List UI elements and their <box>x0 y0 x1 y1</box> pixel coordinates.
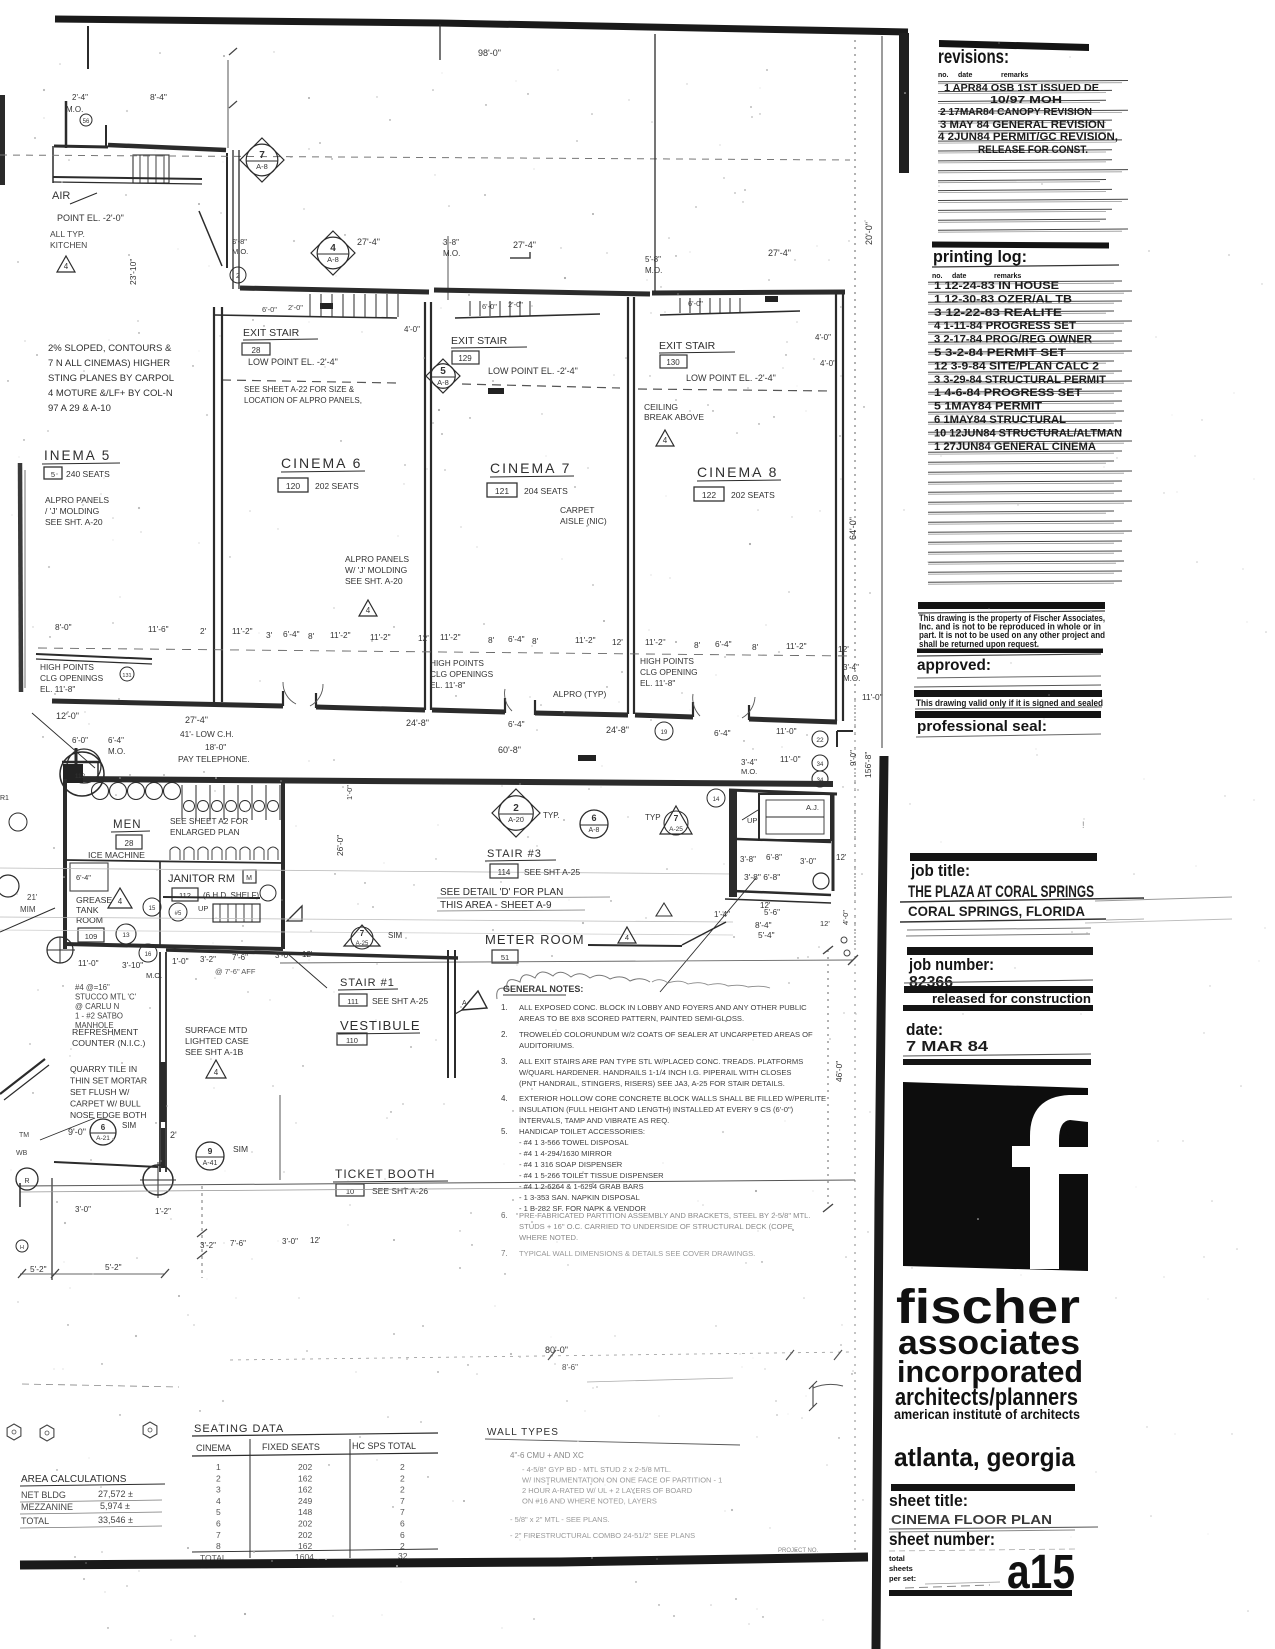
svg-text:SEE DETAIL 'D' FOR PLAN: SEE DETAIL 'D' FOR PLAN <box>440 887 563 898</box>
svg-text:JANITOR RM: JANITOR RM <box>168 873 235 885</box>
svg-text:4: 4 <box>663 436 668 445</box>
svg-text:- 2" FIRESTRUCTURAL COMBO 24-5: - 2" FIRESTRUCTURAL COMBO 24-51/2" SEE P… <box>510 1531 695 1540</box>
svg-text:@ CARLU N: @ CARLU N <box>75 1002 119 1011</box>
svg-text:A-20: A-20 <box>508 815 524 824</box>
svg-text:!: ! <box>1082 820 1085 830</box>
svg-text:printing log:: printing log: <box>933 247 1027 266</box>
svg-text:112: 112 <box>75 773 86 780</box>
svg-text:8': 8' <box>532 636 539 646</box>
svg-text:240 SEATS: 240 SEATS <box>66 469 110 479</box>
svg-text:3.: 3. <box>501 1057 508 1066</box>
svg-text:98'-0": 98'-0" <box>478 48 501 58</box>
svg-text:1 - #2 SATBO: 1 - #2 SATBO <box>75 1012 123 1021</box>
svg-text:AUDITORIUMS.: AUDITORIUMS. <box>519 1041 574 1050</box>
svg-text:MIM: MIM <box>20 905 36 914</box>
svg-text:METER ROOM: METER ROOM <box>485 932 585 947</box>
svg-text:7: 7 <box>360 929 365 938</box>
svg-text:162: 162 <box>298 1485 312 1495</box>
svg-text:114: 114 <box>498 868 511 877</box>
svg-text:202: 202 <box>298 1530 312 1540</box>
svg-text:12': 12' <box>310 1236 321 1245</box>
svg-text:M: M <box>246 875 252 882</box>
svg-text:7'-6": 7'-6" <box>230 1239 246 1248</box>
svg-text:1'-2": 1'-2" <box>155 1207 171 1216</box>
svg-text:3 2-17-84 PROG/REG OWNER: 3 2-17-84 PROG/REG OWNER <box>934 334 1092 346</box>
svg-text:6: 6 <box>591 813 596 823</box>
svg-text:date:: date: <box>906 1020 943 1039</box>
svg-text:3'-2": 3'-2" <box>200 1241 216 1250</box>
svg-text:24'-8": 24'-8" <box>606 725 629 735</box>
svg-text:SURFACE MTD: SURFACE MTD <box>185 1025 247 1035</box>
svg-text:120: 120 <box>286 481 300 491</box>
svg-text:4: 4 <box>625 933 629 942</box>
svg-text:6'-0": 6'-0" <box>262 305 277 314</box>
svg-text:2: 2 <box>400 1485 405 1495</box>
svg-text:21': 21' <box>27 893 38 902</box>
svg-text:6'-4": 6'-4" <box>714 728 731 738</box>
svg-text:M.O.: M.O. <box>232 247 248 256</box>
svg-text:11'-6": 11'-6" <box>148 624 169 634</box>
svg-text:4: 4 <box>330 243 336 254</box>
svg-text:122: 122 <box>702 490 716 500</box>
svg-text:4: 4 <box>118 897 123 906</box>
svg-text:11'-0": 11'-0" <box>862 692 883 702</box>
svg-text:AREAS TO BE 8X8 SCORED PATTERN: AREAS TO BE 8X8 SCORED PATTERN, PAINTED … <box>519 1014 744 1023</box>
svg-text:atlanta, georgia: atlanta, georgia <box>894 1442 1076 1472</box>
svg-text:60'-8": 60'-8" <box>498 745 521 755</box>
svg-text:6'-0": 6'-0" <box>688 299 703 308</box>
svg-text:MEN: MEN <box>113 819 142 831</box>
svg-text:8'-6": 8'-6" <box>562 1363 578 1372</box>
svg-text:7: 7 <box>400 1496 405 1506</box>
svg-text:UP: UP <box>198 904 208 913</box>
svg-text:TYP.: TYP. <box>543 811 560 820</box>
svg-text:H: H <box>20 1245 24 1251</box>
svg-text:INSULATION (FULL HEIGHT AND LE: INSULATION (FULL HEIGHT AND LENGTH) INST… <box>519 1105 794 1114</box>
svg-text:131: 131 <box>122 673 131 679</box>
svg-text:date: date <box>952 273 967 280</box>
svg-text:2': 2' <box>170 1130 177 1140</box>
svg-text:202: 202 <box>298 1519 312 1529</box>
svg-text:8: 8 <box>216 1541 221 1551</box>
svg-text:STUCCO MTL 'C': STUCCO MTL 'C' <box>75 993 137 1002</box>
svg-text:11'-0": 11'-0" <box>78 958 99 968</box>
svg-text:NET BLDG: NET BLDG <box>21 1490 66 1500</box>
svg-text:4'-0": 4'-0" <box>841 910 850 925</box>
svg-text:A.J.: A.J. <box>806 803 819 812</box>
svg-text:M.O.: M.O. <box>108 747 125 756</box>
svg-text:28: 28 <box>125 839 134 848</box>
svg-text:TYP: TYP <box>645 813 661 822</box>
svg-text:GREASE: GREASE <box>76 895 112 905</box>
svg-text:EXIT STAIR: EXIT STAIR <box>243 327 300 339</box>
svg-text:remarks: remarks <box>994 273 1021 280</box>
svg-text:3 12-22-83 REALITE: 3 12-22-83 REALITE <box>934 307 1062 319</box>
svg-text:GENERAL NOTES:: GENERAL NOTES: <box>503 984 583 994</box>
svg-text:3'-8": 3'-8" <box>740 855 756 864</box>
svg-text:SIM: SIM <box>122 1121 137 1130</box>
svg-text:R1: R1 <box>0 795 9 802</box>
svg-text:CLG OPENINGS: CLG OPENINGS <box>430 669 494 679</box>
svg-text:CLG OPENINGS: CLG OPENINGS <box>40 673 104 683</box>
svg-text:TOTAL: TOTAL <box>21 1516 49 1526</box>
svg-text:6'-8": 6'-8" <box>766 853 782 862</box>
svg-text:27'-4": 27'-4" <box>357 237 380 247</box>
svg-text:EXIT STAIR: EXIT STAIR <box>451 335 508 347</box>
svg-text:sheets: sheets <box>889 1564 913 1573</box>
svg-text:W/ INSTRUMENTATION ON ONE FACE: W/ INSTRUMENTATION ON ONE FACE OF PARTIT… <box>522 1476 722 1485</box>
svg-text:TANK: TANK <box>76 905 99 915</box>
svg-text:15: 15 <box>149 906 156 912</box>
svg-text:HC SPS TOTAL: HC SPS TOTAL <box>352 1441 416 1451</box>
svg-text:2: 2 <box>236 273 240 280</box>
svg-text:CINEMA 7: CINEMA 7 <box>490 460 571 476</box>
svg-text:162: 162 <box>298 1541 312 1551</box>
svg-text:no.: no. <box>938 72 949 79</box>
svg-text:LOW POINT EL. -2'-4": LOW POINT EL. -2'-4" <box>488 366 578 376</box>
svg-text:249: 249 <box>298 1496 312 1506</box>
svg-text:LOCATION OF ALPRO PANELS,: LOCATION OF ALPRO PANELS, <box>244 396 362 405</box>
svg-text:5: 5 <box>216 1507 221 1517</box>
svg-text:6: 6 <box>216 1519 221 1529</box>
svg-text:SEE SHEET A2 FOR: SEE SHEET A2 FOR <box>170 816 248 826</box>
svg-text:(PNT HANDRAIL, STINGERS, RISER: (PNT HANDRAIL, STINGERS, RISERS) SEE JA3… <box>519 1079 785 1088</box>
svg-text:A-25: A-25 <box>669 826 683 833</box>
svg-text:SEE SHEET A-22 FOR SIZE &: SEE SHEET A-22 FOR SIZE & <box>244 385 355 394</box>
svg-text:date: date <box>958 72 973 79</box>
svg-text:ALPRO PANELS: ALPRO PANELS <box>45 495 109 505</box>
svg-text:A-8: A-8 <box>437 378 449 387</box>
svg-text:22: 22 <box>816 737 824 744</box>
svg-text:6'-4": 6'-4" <box>508 719 525 729</box>
svg-text:11'-2": 11'-2" <box>440 632 461 642</box>
svg-text:A-8: A-8 <box>327 255 339 264</box>
svg-text:ENLARGED PLAN: ENLARGED PLAN <box>170 827 240 837</box>
svg-text:12': 12' <box>760 901 771 910</box>
svg-text:CINEMA: CINEMA <box>196 1443 231 1453</box>
svg-text:SEE SHT. A-20: SEE SHT. A-20 <box>45 517 103 527</box>
svg-text:CARPET: CARPET <box>560 505 594 515</box>
svg-text:5,974 ±: 5,974 ± <box>100 1501 130 1511</box>
svg-text:COUNTER (N.I.C.): COUNTER (N.I.C.) <box>72 1038 145 1048</box>
svg-text:EXTERIOR HOLLOW CORE CONCRETE: EXTERIOR HOLLOW CORE CONCRETE BLOCK WALL… <box>519 1094 826 1103</box>
svg-text:3'-2": 3'-2" <box>200 955 216 964</box>
svg-text:job number:: job number: <box>908 955 994 974</box>
svg-text:M.O.: M.O. <box>741 767 757 776</box>
svg-text:WALL TYPES: WALL TYPES <box>487 1427 559 1438</box>
svg-text:26'-0": 26'-0" <box>335 835 345 856</box>
svg-text:6'-4": 6'-4" <box>508 634 525 644</box>
svg-text:TYPICAL WALL DIMENSIONS & DETA: TYPICAL WALL DIMENSIONS & DETAILS SEE CO… <box>519 1249 755 1258</box>
svg-text:W/ 'J' MOLDING: W/ 'J' MOLDING <box>345 565 407 575</box>
svg-text:5 3-2-84 PERMIT SET: 5 3-2-84 PERMIT SET <box>934 347 1066 359</box>
svg-text:1: 1 <box>216 1462 221 1472</box>
svg-text:A: A <box>462 1000 467 1007</box>
svg-text:RELEASE FOR CONST.: RELEASE FOR CONST. <box>978 144 1088 156</box>
svg-text:EL. 11'-8": EL. 11'-8" <box>430 680 465 690</box>
svg-text:4.: 4. <box>501 1094 508 1103</box>
svg-text:ALL EXIT STAIRS ARE PAN TYPE S: ALL EXIT STAIRS ARE PAN TYPE STL W/PLACE… <box>519 1057 803 1066</box>
svg-text:14: 14 <box>713 797 720 803</box>
svg-text:6: 6 <box>400 1530 405 1540</box>
svg-text:6: 6 <box>101 1123 106 1132</box>
svg-text:130: 130 <box>666 358 680 367</box>
svg-text:12': 12' <box>836 853 847 862</box>
svg-text:64'-0": 64'-0" <box>848 517 858 540</box>
svg-text:7 MAR 84: 7 MAR 84 <box>906 1038 989 1055</box>
svg-text:56: 56 <box>83 119 90 125</box>
svg-text:12': 12' <box>418 633 429 643</box>
svg-text:8': 8' <box>308 631 315 641</box>
svg-text:1'-0": 1'-0" <box>172 956 189 966</box>
svg-text:AISLE (NIC): AISLE (NIC) <box>560 516 607 526</box>
svg-text:- #4 1 4-294/1630 MIRROR: - #4 1 4-294/1630 MIRROR <box>519 1149 612 1158</box>
svg-text:AREA CALCULATIONS: AREA CALCULATIONS <box>21 1474 127 1485</box>
svg-text:11'-2": 11'-2" <box>575 635 596 645</box>
svg-text:3 MAY 84 GENERAL REVISION: 3 MAY 84 GENERAL REVISION <box>940 119 1105 131</box>
svg-text:156'-8": 156'-8" <box>863 752 873 778</box>
svg-text:7: 7 <box>674 813 679 823</box>
svg-text:CINEMA 6: CINEMA 6 <box>281 455 362 471</box>
svg-text:VESTIBULE: VESTIBULE <box>340 1018 421 1033</box>
svg-text:revisions:: revisions: <box>938 47 1009 68</box>
svg-text:released for construction: released for construction <box>932 992 1091 1006</box>
svg-text:6.: 6. <box>501 1211 508 1220</box>
svg-text:7: 7 <box>259 150 265 161</box>
svg-text:3 3-29-84 STRUCTURAL PERMIT: 3 3-29-84 STRUCTURAL PERMIT <box>934 374 1106 386</box>
svg-text:LIGHTED CASE: LIGHTED CASE <box>185 1036 249 1046</box>
svg-text:9'-0": 9'-0" <box>68 1127 86 1137</box>
svg-text:HIGH POINTS: HIGH POINTS <box>40 662 94 672</box>
svg-text:8'-4": 8'-4" <box>755 920 772 930</box>
svg-text:6'-4": 6'-4" <box>108 736 124 745</box>
svg-text:3'-8": 3'-8" <box>443 238 459 247</box>
svg-text:10: 10 <box>346 1187 354 1196</box>
svg-text:3'-0": 3'-0" <box>275 951 291 960</box>
svg-text:28: 28 <box>252 346 261 355</box>
svg-text:19: 19 <box>661 730 668 736</box>
svg-text:8': 8' <box>488 635 495 645</box>
svg-text:american institute of architec: american institute of architects <box>894 1407 1080 1422</box>
svg-text:1 27JUN84 GENERAL CINEMA: 1 27JUN84 GENERAL CINEMA <box>934 441 1096 453</box>
svg-text:5'-8": 5'-8" <box>645 255 661 264</box>
svg-text:2: 2 <box>400 1462 405 1472</box>
svg-text:3'-4": 3'-4" <box>843 663 859 672</box>
svg-text:EL. 11'-8": EL. 11'-8" <box>640 678 675 688</box>
svg-text:27'-4": 27'-4" <box>768 248 791 258</box>
svg-text:SEATING DATA: SEATING DATA <box>194 1423 284 1435</box>
svg-text:41'- LOW C.H.: 41'- LOW C.H. <box>180 729 234 739</box>
svg-text:11'-2": 11'-2" <box>786 641 807 651</box>
svg-text:9: 9 <box>208 1146 213 1156</box>
svg-text:51: 51 <box>501 953 509 962</box>
svg-text:CORAL SPRINGS, FLORIDA: CORAL SPRINGS, FLORIDA <box>908 903 1085 919</box>
svg-text:2'-0": 2'-0" <box>288 303 303 312</box>
svg-text:5: 5 <box>440 366 446 377</box>
svg-text:STING PLANES BY CARPOL: STING PLANES BY CARPOL <box>48 373 174 384</box>
svg-text:1 12-24-83 IN HOUSE: 1 12-24-83 IN HOUSE <box>934 280 1059 292</box>
svg-text:6'-4": 6'-4" <box>76 873 91 882</box>
svg-text:7.: 7. <box>501 1249 508 1258</box>
svg-text:80'-0": 80'-0" <box>545 1345 568 1355</box>
svg-text:CARPET W/ BULL: CARPET W/ BULL <box>70 1099 141 1109</box>
svg-text:4: 4 <box>366 606 371 615</box>
svg-text:STUDS + 16" O.C. CARRIED TO UN: STUDS + 16" O.C. CARRIED TO UNDERSIDE OF… <box>519 1222 793 1231</box>
svg-text:- #4 1 3-566 TOWEL DISPOSAL: - #4 1 3-566 TOWEL DISPOSAL <box>519 1138 629 1147</box>
svg-text:ALPRO PANELS: ALPRO PANELS <box>345 554 409 564</box>
svg-text:PAY TELEPHONE.: PAY TELEPHONE. <box>178 754 250 764</box>
svg-text:/ 'J' MOLDING: / 'J' MOLDING <box>45 506 99 516</box>
svg-text:A-41: A-41 <box>203 1160 218 1167</box>
svg-text:sheet title:: sheet title: <box>889 1491 968 1510</box>
svg-text:2: 2 <box>513 803 519 814</box>
svg-text:#4 @=16": #4 @=16" <box>75 983 110 992</box>
svg-text:5'-2": 5'-2" <box>105 1262 122 1272</box>
svg-text:- 4-5/8" GYP BD - MTL STUD 2 x: - 4-5/8" GYP BD - MTL STUD 2 x 2-5/8 MTL… <box>522 1465 671 1474</box>
svg-text:4'-0": 4'-0" <box>820 359 836 368</box>
svg-text:FIXED SEATS: FIXED SEATS <box>262 1442 320 1452</box>
svg-text:202 SEATS: 202 SEATS <box>315 481 359 491</box>
svg-text:TROWELED COLORUNDUM W/2 COATS: TROWELED COLORUNDUM W/2 COATS OF SEALER … <box>519 1030 813 1039</box>
svg-text:24'-8": 24'-8" <box>406 718 429 728</box>
svg-text:2: 2 <box>216 1473 221 1483</box>
svg-text:M.O.: M.O. <box>66 105 83 114</box>
svg-text:M.O.: M.O. <box>146 971 162 980</box>
svg-text:11'-0": 11'-0" <box>776 726 797 736</box>
svg-text:4'-0": 4'-0" <box>404 325 420 334</box>
svg-text:WB: WB <box>16 1150 28 1157</box>
svg-text:- 5/8" x 2" MTL - SEE PLANS.: - 5/8" x 2" MTL - SEE PLANS. <box>510 1515 610 1524</box>
svg-text:KITCHEN: KITCHEN <box>50 240 87 250</box>
svg-text:12': 12' <box>612 637 623 647</box>
svg-text:STAIR #3: STAIR #3 <box>487 848 542 860</box>
svg-text:- #4 1 2-6264 & 1-6294 GRAB BA: - #4 1 2-6264 & 1-6294 GRAB BARS <box>519 1182 644 1191</box>
svg-text:109: 109 <box>85 932 98 941</box>
svg-text:HIGH POINTS: HIGH POINTS <box>430 658 484 668</box>
svg-text:This drawing valid only if it: This drawing valid only if it is signed … <box>916 698 1103 708</box>
svg-text:4"-6 CMU + AND XC: 4"-6 CMU + AND XC <box>510 1451 584 1460</box>
svg-text:ALL TYP.: ALL TYP. <box>50 229 85 239</box>
svg-text:ALPRO (TYP): ALPRO (TYP) <box>553 689 607 699</box>
svg-text:33,546 ±: 33,546 ± <box>98 1515 133 1525</box>
svg-text:13: 13 <box>122 932 130 939</box>
svg-text:@ 7'-6" AFF: @ 7'-6" AFF <box>215 967 256 976</box>
svg-text:THIS AREA - SHEET A-9: THIS AREA - SHEET A-9 <box>440 900 552 911</box>
svg-text:5'-2": 5'-2" <box>30 1264 47 1274</box>
svg-text:A-25: A-25 <box>356 941 369 947</box>
svg-text:11'-2": 11'-2" <box>645 637 666 647</box>
svg-text:6: 6 <box>400 1519 405 1529</box>
svg-text:professional seal:: professional seal: <box>917 718 1047 735</box>
svg-text:6'-4": 6'-4" <box>283 629 300 639</box>
svg-text:11'-2": 11'-2" <box>330 630 351 640</box>
svg-text:LOW POINT EL. -2'-4": LOW POINT EL. -2'-4" <box>686 373 776 383</box>
svg-text:110: 110 <box>346 1036 358 1045</box>
svg-text:3'-0": 3'-0" <box>282 1237 298 1246</box>
svg-text:8': 8' <box>752 642 759 652</box>
svg-text:12': 12' <box>820 919 830 928</box>
svg-text:INTERVALS, TAMP AND VIBRATE AS: INTERVALS, TAMP AND VIBRATE AS REQ. <box>519 1116 669 1125</box>
svg-text:202 SEATS: 202 SEATS <box>731 490 775 500</box>
svg-text:2 HOUR A-RATED W/ UL + 2 LAYER: 2 HOUR A-RATED W/ UL + 2 LAYERS OF BOARD <box>522 1486 693 1495</box>
svg-text:EL. 11'-8": EL. 11'-8" <box>40 684 75 694</box>
svg-text:2': 2' <box>200 626 207 636</box>
svg-text:W/QUARL HARDENER. HANDRAILS 1: W/QUARL HARDENER. HANDRAILS 1-1/4 INCH I… <box>519 1068 791 1077</box>
svg-text:7'-6": 7'-6" <box>232 953 248 962</box>
svg-text:11'-2": 11'-2" <box>232 626 253 636</box>
svg-text:1 4-6-84 PROGRESS SET: 1 4-6-84 PROGRESS SET <box>934 387 1082 399</box>
svg-text:SEE SHT A-26: SEE SHT A-26 <box>372 1186 428 1196</box>
svg-text:approved:: approved: <box>917 657 991 674</box>
svg-text:12 3-9-84 SITE/PLAN CALC 2: 12 3-9-84 SITE/PLAN CALC 2 <box>934 360 1099 372</box>
svg-text:PRE-FABRICATED PARTITION ASSEM: PRE-FABRICATED PARTITION ASSEMBLY AND BR… <box>519 1211 810 1220</box>
svg-text:1 12-30-83 OZER/AL TB: 1 12-30-83 OZER/AL TB <box>934 293 1072 305</box>
svg-text:34: 34 <box>817 762 824 768</box>
svg-text:ROOM: ROOM <box>76 915 103 925</box>
svg-text:3': 3' <box>266 630 273 640</box>
svg-text:9'-0": 9'-0" <box>849 750 858 766</box>
svg-text:6'-4": 6'-4" <box>715 639 732 649</box>
svg-text:6'-0": 6'-0" <box>482 302 497 311</box>
svg-text:INEMA 5: INEMA 5 <box>44 448 111 463</box>
svg-text:R: R <box>24 1178 29 1185</box>
svg-text:remarks: remarks <box>1001 72 1028 79</box>
svg-text:148: 148 <box>298 1507 312 1517</box>
svg-text:7: 7 <box>400 1507 405 1517</box>
svg-text:per set:: per set: <box>889 1574 916 1583</box>
svg-text:111: 111 <box>347 997 358 1006</box>
svg-text:QUARRY TILE IN: QUARRY TILE IN <box>70 1064 137 1074</box>
svg-text:12': 12' <box>302 950 313 959</box>
svg-text:1'-0": 1'-0" <box>345 785 354 800</box>
svg-text:1 APR84 OSB 1ST ISSUED DE: 1 APR84 OSB 1ST ISSUED DE <box>944 82 1099 94</box>
svg-text:A-8: A-8 <box>589 827 600 834</box>
svg-text:10/97 MOH: 10/97 MOH <box>990 94 1062 106</box>
svg-text:3'-0": 3'-0" <box>800 857 816 866</box>
svg-text:8'-4": 8'-4" <box>150 92 167 102</box>
svg-text:- 1 3-353 SAN. NAPKIN DIS: - 1 3-353 SAN. NAPKIN DISPOSAL <box>519 1193 640 1202</box>
svg-text:WHERE NOTED.: WHERE NOTED. <box>519 1233 578 1242</box>
svg-text:121: 121 <box>495 486 509 496</box>
svg-text:3'-10": 3'-10" <box>122 960 143 970</box>
svg-text:A-8: A-8 <box>256 162 268 171</box>
svg-text:CINEMA FLOOR PLAN: CINEMA FLOOR PLAN <box>891 1512 1052 1527</box>
svg-text:112: 112 <box>179 891 191 900</box>
svg-text:SEE SHT A-25: SEE SHT A-25 <box>372 996 428 1006</box>
svg-text:ON #16 AND WHERE NOTED, LAYERS: ON #16 AND WHERE NOTED, LAYERS <box>522 1497 657 1506</box>
svg-text:THE PLAZA AT CORAL SPRINGS: THE PLAZA AT CORAL SPRINGS <box>908 883 1094 901</box>
svg-text:sheet number:: sheet number: <box>889 1529 995 1549</box>
svg-text:4: 4 <box>64 262 69 271</box>
svg-text:4 2JUN84 PERMIT/GC REVISION,: 4 2JUN84 PERMIT/GC REVISION, <box>938 131 1118 143</box>
svg-text:M.O.: M.O. <box>843 674 860 683</box>
svg-text:total: total <box>889 1554 905 1563</box>
svg-text:23'-10": 23'-10" <box>128 259 138 285</box>
svg-text:SET FLUSH W/: SET FLUSH W/ <box>70 1087 130 1097</box>
svg-text:12'-0": 12'-0" <box>56 711 79 721</box>
svg-text:7: 7 <box>216 1530 221 1540</box>
svg-text:CINEMA 8: CINEMA 8 <box>697 464 778 480</box>
svg-text:SIM: SIM <box>233 1144 248 1154</box>
svg-text:SEE SHT A-25: SEE SHT A-25 <box>524 867 580 877</box>
svg-text:27'-4": 27'-4" <box>185 715 208 725</box>
svg-text:job title:: job title: <box>910 861 970 880</box>
svg-text:2.: 2. <box>501 1030 508 1039</box>
svg-text:4: 4 <box>214 1068 219 1077</box>
svg-text:TM: TM <box>19 1132 29 1139</box>
svg-text:ICE MACHINE: ICE MACHINE <box>88 850 145 860</box>
svg-text:202: 202 <box>298 1462 312 1472</box>
